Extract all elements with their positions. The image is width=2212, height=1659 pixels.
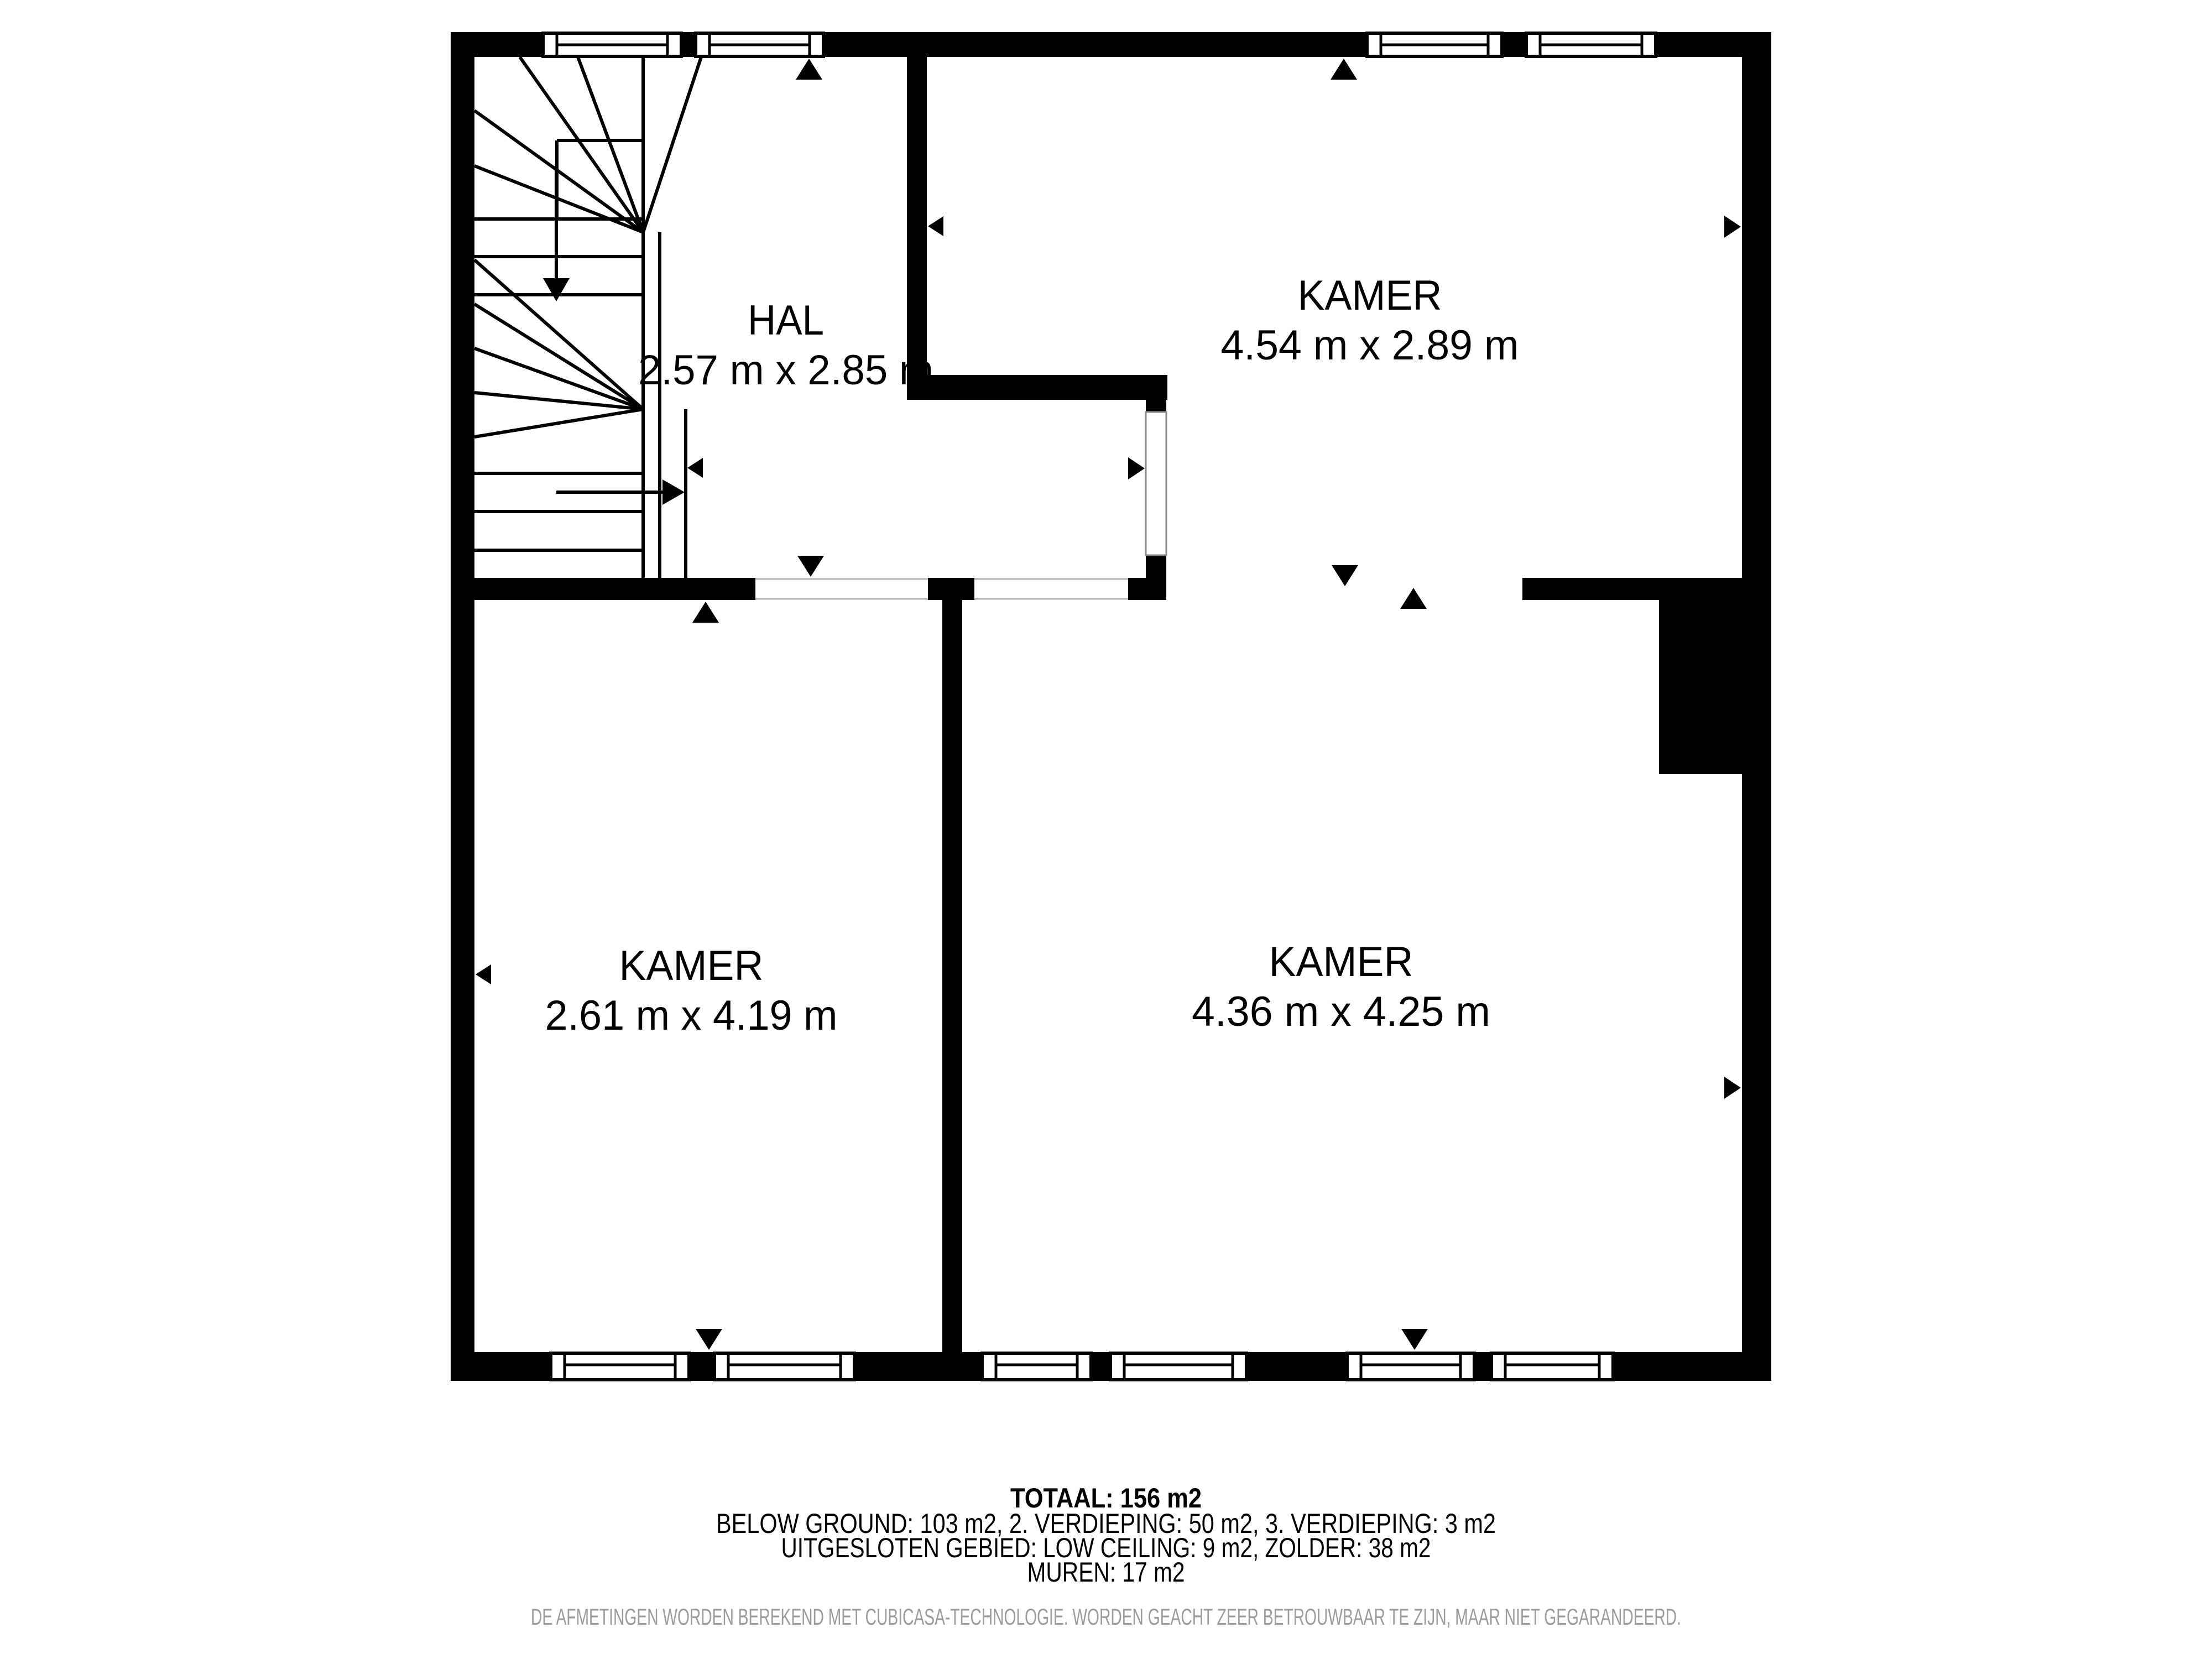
marker-down-icon <box>1401 1329 1428 1350</box>
wall-bottom-rooms-divider <box>942 600 962 1352</box>
room-dims-kamer-bottom-left: 2.61 m x 4.19 m <box>545 992 838 1039</box>
room-dims-kamer-top-right: 4.54 m x 2.89 m <box>1221 322 1519 369</box>
wall-door-post <box>1146 555 1166 580</box>
footer-walls-line: MUREN: 17 m2 <box>1027 1557 1185 1588</box>
wall-right <box>1742 32 1771 1381</box>
stair-entry-marker-icon <box>687 458 703 478</box>
stair-direction-arrow-down-icon <box>543 166 570 301</box>
room-label-kamer-bottom-left: KAMER <box>619 942 764 989</box>
room-label-kamer-top-right: KAMER <box>1298 272 1442 319</box>
marker-down-icon <box>696 1329 722 1350</box>
marker-down-icon <box>797 556 824 577</box>
window <box>1347 1353 1474 1380</box>
window <box>982 1353 1091 1380</box>
stair-direction-arrow-right-icon <box>556 479 685 505</box>
window <box>714 1353 854 1380</box>
wall-middle-left <box>451 578 755 600</box>
outer-walls <box>451 32 1771 1381</box>
marker-left-icon <box>476 964 491 984</box>
room-dims-hal: 2.57 m x 2.85 m <box>638 347 933 394</box>
door-opening-strip <box>1146 412 1166 555</box>
marker-right-icon <box>1724 1077 1741 1099</box>
room-label-kamer-bottom-right: KAMER <box>1269 938 1413 985</box>
window <box>1526 33 1656 56</box>
marker-down-icon <box>1332 565 1358 586</box>
marker-up-icon <box>796 59 822 80</box>
wall-hal-kamer-horizontal <box>907 375 1167 400</box>
footer: TOTAAL: 156 m2 BELOW GROUND: 103 m2, 2. … <box>531 1483 1681 1630</box>
window <box>696 33 823 56</box>
room-dims-kamer-bottom-right: 4.36 m x 4.25 m <box>1192 988 1490 1035</box>
marker-left-icon <box>928 216 943 236</box>
floor-plan-drawing: HAL 2.57 m x 2.85 m KAMER 4.54 m x 2.89 … <box>0 0 2212 1659</box>
wall-middle-right <box>1522 578 1742 600</box>
window <box>551 1353 689 1380</box>
wall-left <box>451 32 474 1381</box>
shaft-block <box>1659 600 1742 774</box>
marker-right-icon <box>1724 216 1741 238</box>
opening-markers <box>476 59 1741 1350</box>
window <box>1491 1353 1613 1380</box>
room-label-hal: HAL <box>748 297 824 344</box>
footer-disclaimer: DE AFMETINGEN WORDEN BEREKEND MET CUBICA… <box>531 1604 1681 1630</box>
marker-up-icon <box>692 602 719 623</box>
wall-middle-pier <box>928 578 974 600</box>
staircase <box>474 57 703 578</box>
wall-door-stub-top <box>1146 400 1166 412</box>
floor-plan-page: HAL 2.57 m x 2.85 m KAMER 4.54 m x 2.89 … <box>0 0 2212 1659</box>
wall-middle-doorpost <box>1128 578 1166 600</box>
marker-up-icon <box>1400 588 1427 609</box>
window <box>1110 1353 1246 1380</box>
stair-winder-fan-upper <box>474 57 701 232</box>
window <box>1367 33 1502 56</box>
window <box>543 33 681 56</box>
marker-right-icon <box>1128 457 1145 479</box>
marker-up-icon <box>1331 59 1357 80</box>
